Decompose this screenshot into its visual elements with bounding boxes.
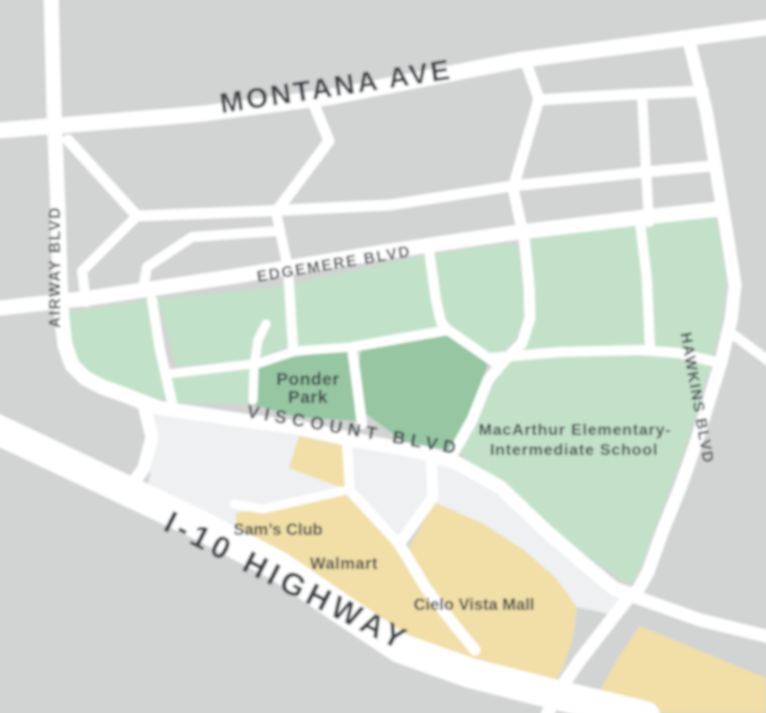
svg-text:Intermediate School: Intermediate School <box>490 442 658 459</box>
svg-text:AIRWAY BLVD: AIRWAY BLVD <box>47 206 64 328</box>
svg-text:Sam’s Club: Sam’s Club <box>233 521 322 539</box>
svg-text:Park: Park <box>288 387 328 407</box>
svg-text:Cielo Vista Mall: Cielo Vista Mall <box>414 596 535 614</box>
svg-text:MacArthur Elementary-: MacArthur Elementary- <box>479 422 672 439</box>
svg-text:Ponder: Ponder <box>276 369 339 389</box>
svg-text:Walmart: Walmart <box>310 555 378 573</box>
